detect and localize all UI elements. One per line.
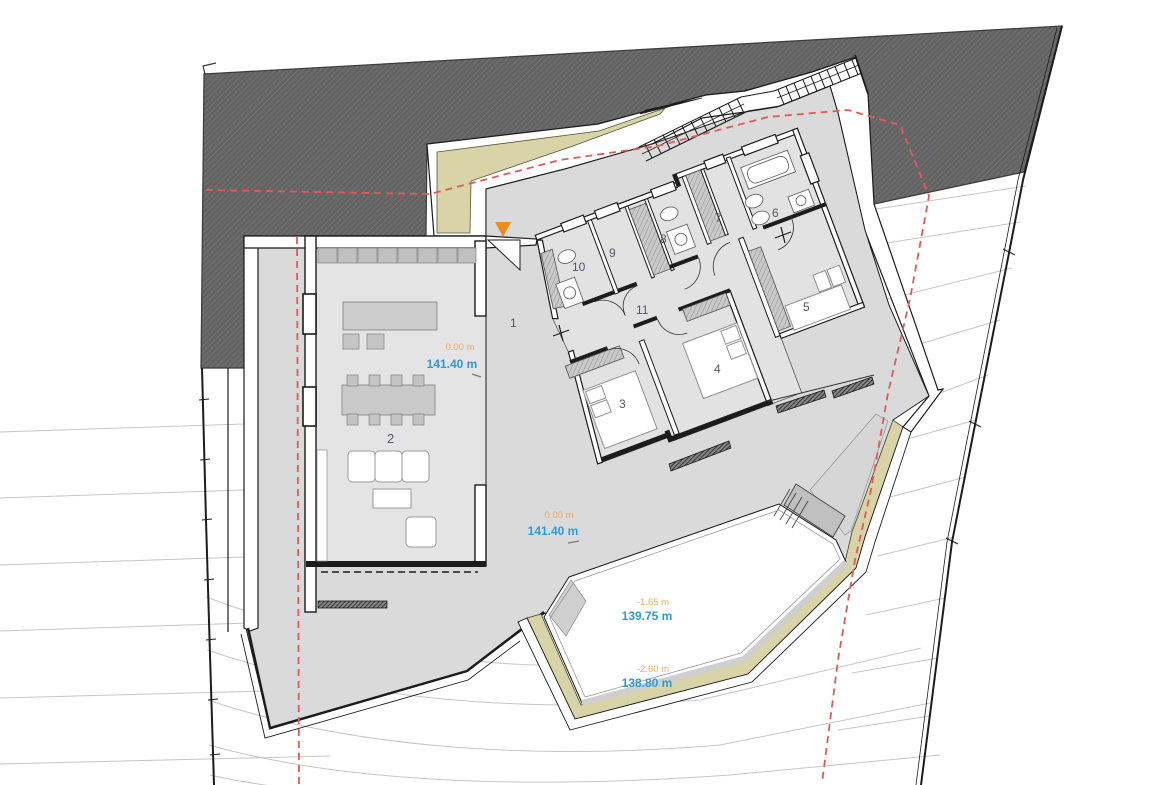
svg-text:3: 3 xyxy=(619,397,626,411)
svg-text:138.80 m: 138.80 m xyxy=(622,676,673,690)
svg-text:7: 7 xyxy=(715,211,722,225)
svg-text:139.75 m: 139.75 m xyxy=(622,609,673,623)
svg-text:1: 1 xyxy=(510,316,517,330)
svg-text:9: 9 xyxy=(609,246,616,260)
svg-text:2: 2 xyxy=(387,431,394,446)
svg-text:0.00 m: 0.00 m xyxy=(544,510,573,521)
svg-text:11: 11 xyxy=(636,303,649,317)
svg-text:5: 5 xyxy=(803,300,810,314)
svg-text:141.40 m: 141.40 m xyxy=(528,524,579,538)
svg-text:0.00 m: 0.00 m xyxy=(445,342,474,353)
svg-text:4: 4 xyxy=(714,362,721,376)
svg-text:6: 6 xyxy=(772,206,779,220)
svg-text:141.40 m: 141.40 m xyxy=(427,357,478,371)
svg-text:10: 10 xyxy=(572,260,586,274)
svg-text:-2.60 m: -2.60 m xyxy=(637,664,669,675)
svg-text:8: 8 xyxy=(660,232,667,246)
svg-text:-1.65 m: -1.65 m xyxy=(637,597,669,608)
